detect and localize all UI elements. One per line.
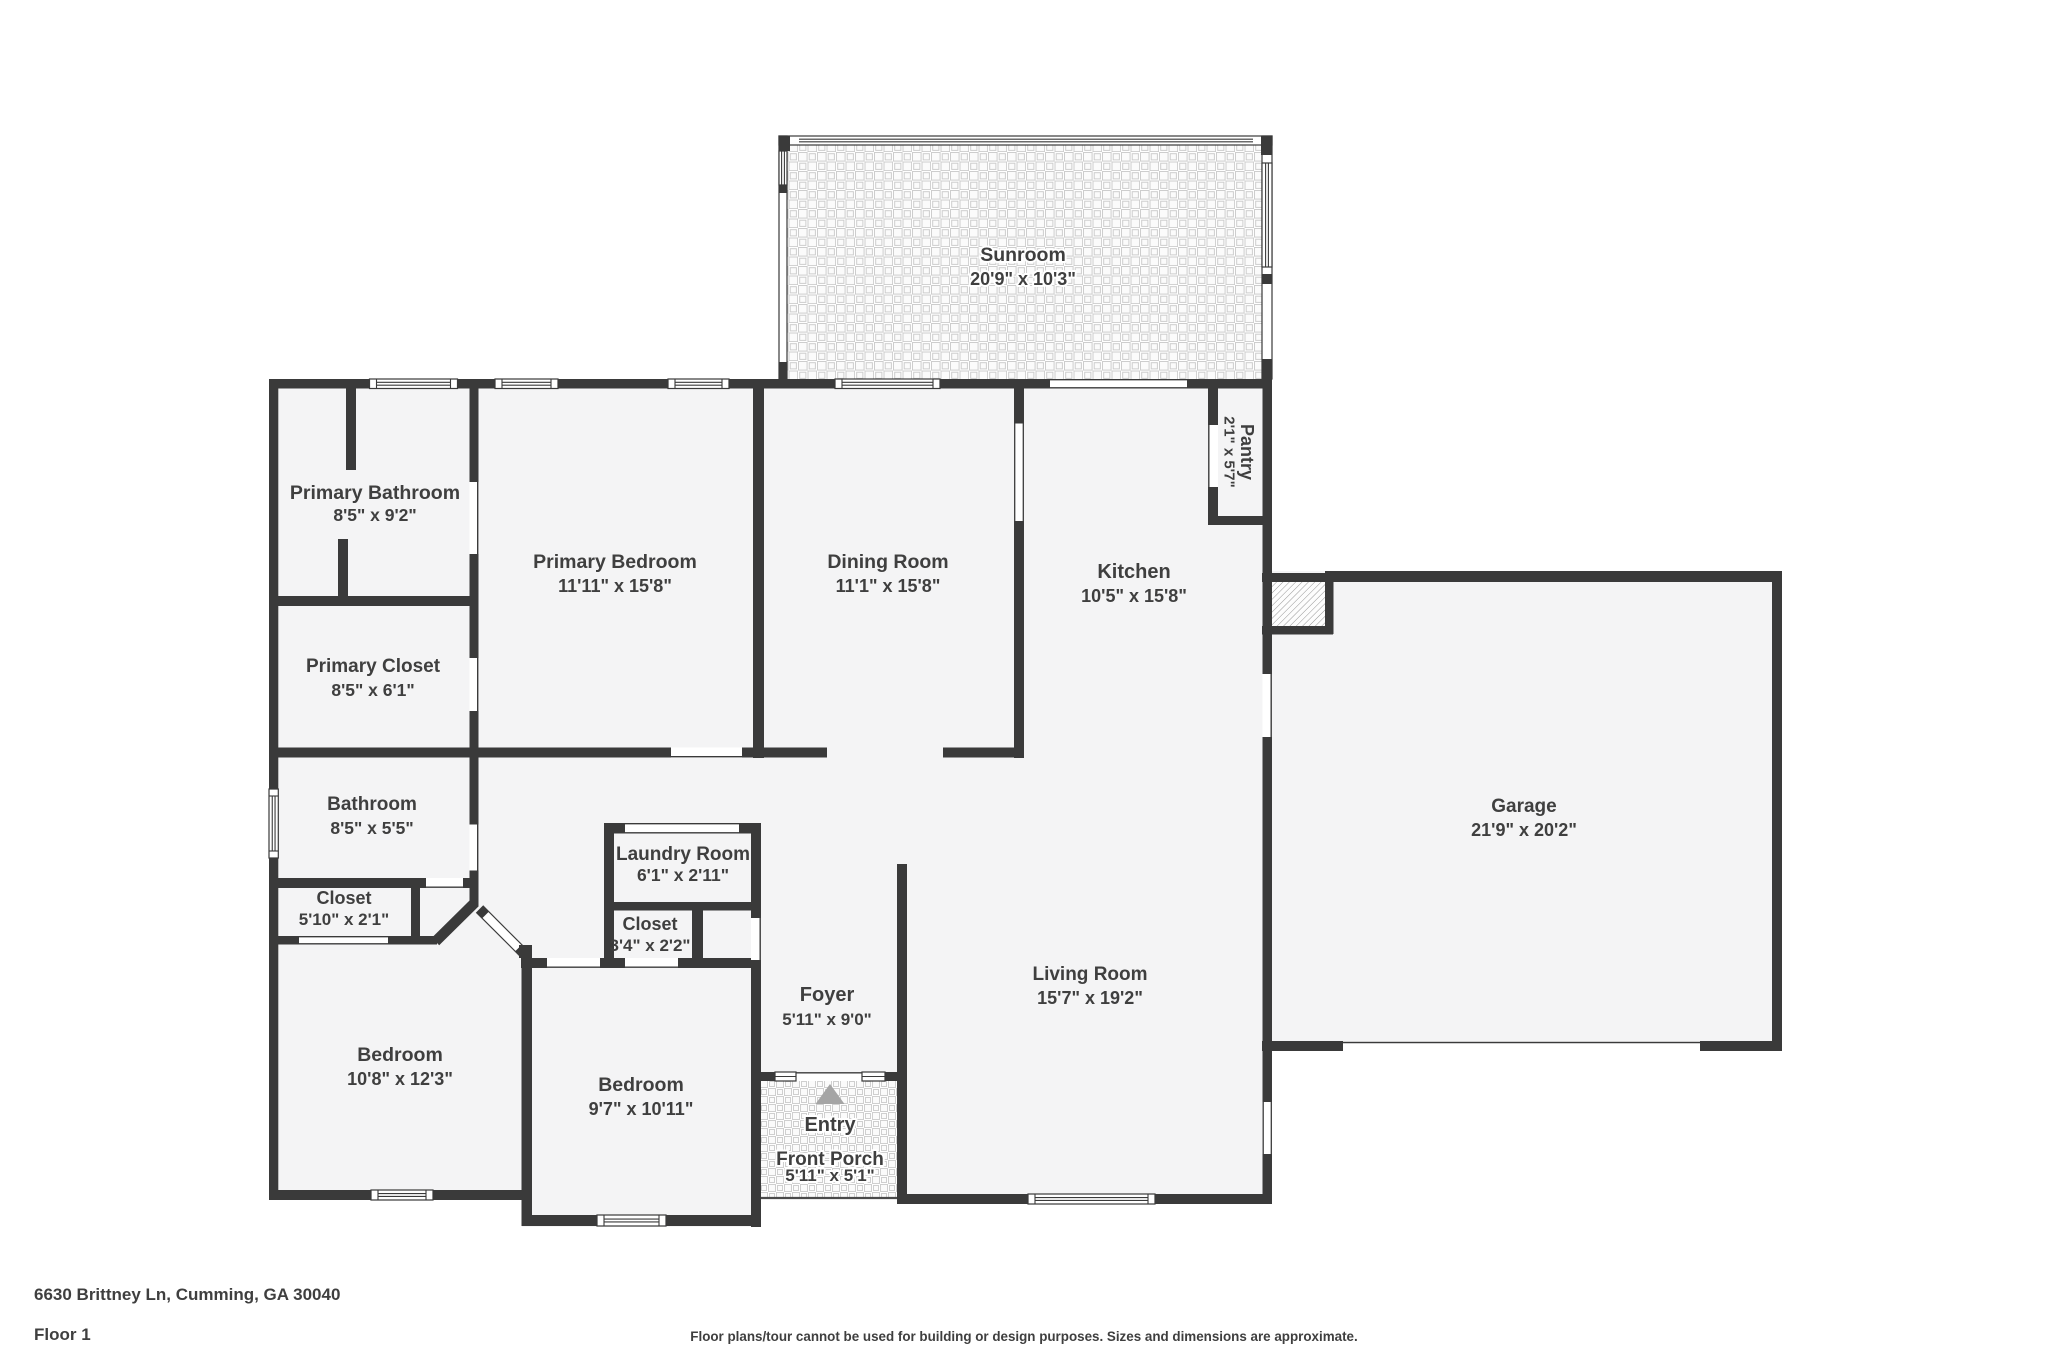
svg-text:11'11" x 15'8": 11'11" x 15'8" (558, 576, 672, 596)
svg-text:Floor 1: Floor 1 (34, 1325, 91, 1344)
svg-text:8'5" x 5'5": 8'5" x 5'5" (330, 818, 413, 838)
svg-text:Primary Bathroom: Primary Bathroom (290, 482, 460, 504)
svg-text:Dining Room: Dining Room (827, 551, 948, 573)
svg-text:5'10" x 2'1": 5'10" x 2'1" (299, 910, 389, 929)
svg-text:6630 Brittney Ln, Cumming, GA: 6630 Brittney Ln, Cumming, GA 30040 (34, 1285, 340, 1304)
svg-text:Garage: Garage (1491, 796, 1556, 817)
svg-text:Pantry: Pantry (1237, 424, 1257, 480)
svg-text:Closet: Closet (622, 914, 677, 934)
svg-text:Kitchen: Kitchen (1097, 561, 1170, 583)
svg-text:20'9" x 10'3": 20'9" x 10'3" (970, 269, 1076, 289)
svg-text:15'7" x 19'2": 15'7" x 19'2" (1037, 988, 1143, 1008)
svg-text:Primary Bedroom: Primary Bedroom (533, 551, 697, 573)
svg-text:10'8" x 12'3": 10'8" x 12'3" (347, 1069, 453, 1089)
svg-text:Foyer: Foyer (800, 984, 855, 1006)
svg-text:5'11" x 5'1": 5'11" x 5'1" (785, 1166, 874, 1185)
svg-text:8'5" x 6'1": 8'5" x 6'1" (331, 680, 414, 700)
svg-text:8'5" x 9'2": 8'5" x 9'2" (333, 505, 416, 525)
svg-text:10'5" x 15'8": 10'5" x 15'8" (1081, 586, 1187, 606)
svg-text:3'4" x 2'2": 3'4" x 2'2" (610, 936, 691, 955)
svg-text:9'7" x 10'11": 9'7" x 10'11" (589, 1099, 694, 1119)
svg-text:Bathroom: Bathroom (327, 794, 417, 815)
svg-text:Floor plans/tour cannot be use: Floor plans/tour cannot be used for buil… (690, 1329, 1357, 1344)
svg-text:Bedroom: Bedroom (357, 1044, 443, 1066)
svg-text:21'9" x 20'2": 21'9" x 20'2" (1471, 820, 1577, 840)
svg-text:Living Room: Living Room (1032, 964, 1147, 985)
svg-text:Closet: Closet (316, 888, 371, 908)
svg-text:Primary Closet: Primary Closet (306, 656, 441, 677)
svg-text:11'1" x 15'8": 11'1" x 15'8" (836, 576, 941, 596)
svg-text:Bedroom: Bedroom (598, 1074, 684, 1096)
svg-text:Entry: Entry (804, 1114, 856, 1136)
svg-text:Laundry Room: Laundry Room (616, 844, 750, 865)
svg-text:Sunroom: Sunroom (980, 244, 1066, 266)
svg-text:2'1" x 5'7": 2'1" x 5'7" (1221, 416, 1238, 487)
svg-text:6'1" x 2'11": 6'1" x 2'11" (637, 865, 729, 885)
svg-text:5'11" x 9'0": 5'11" x 9'0" (782, 1010, 871, 1029)
